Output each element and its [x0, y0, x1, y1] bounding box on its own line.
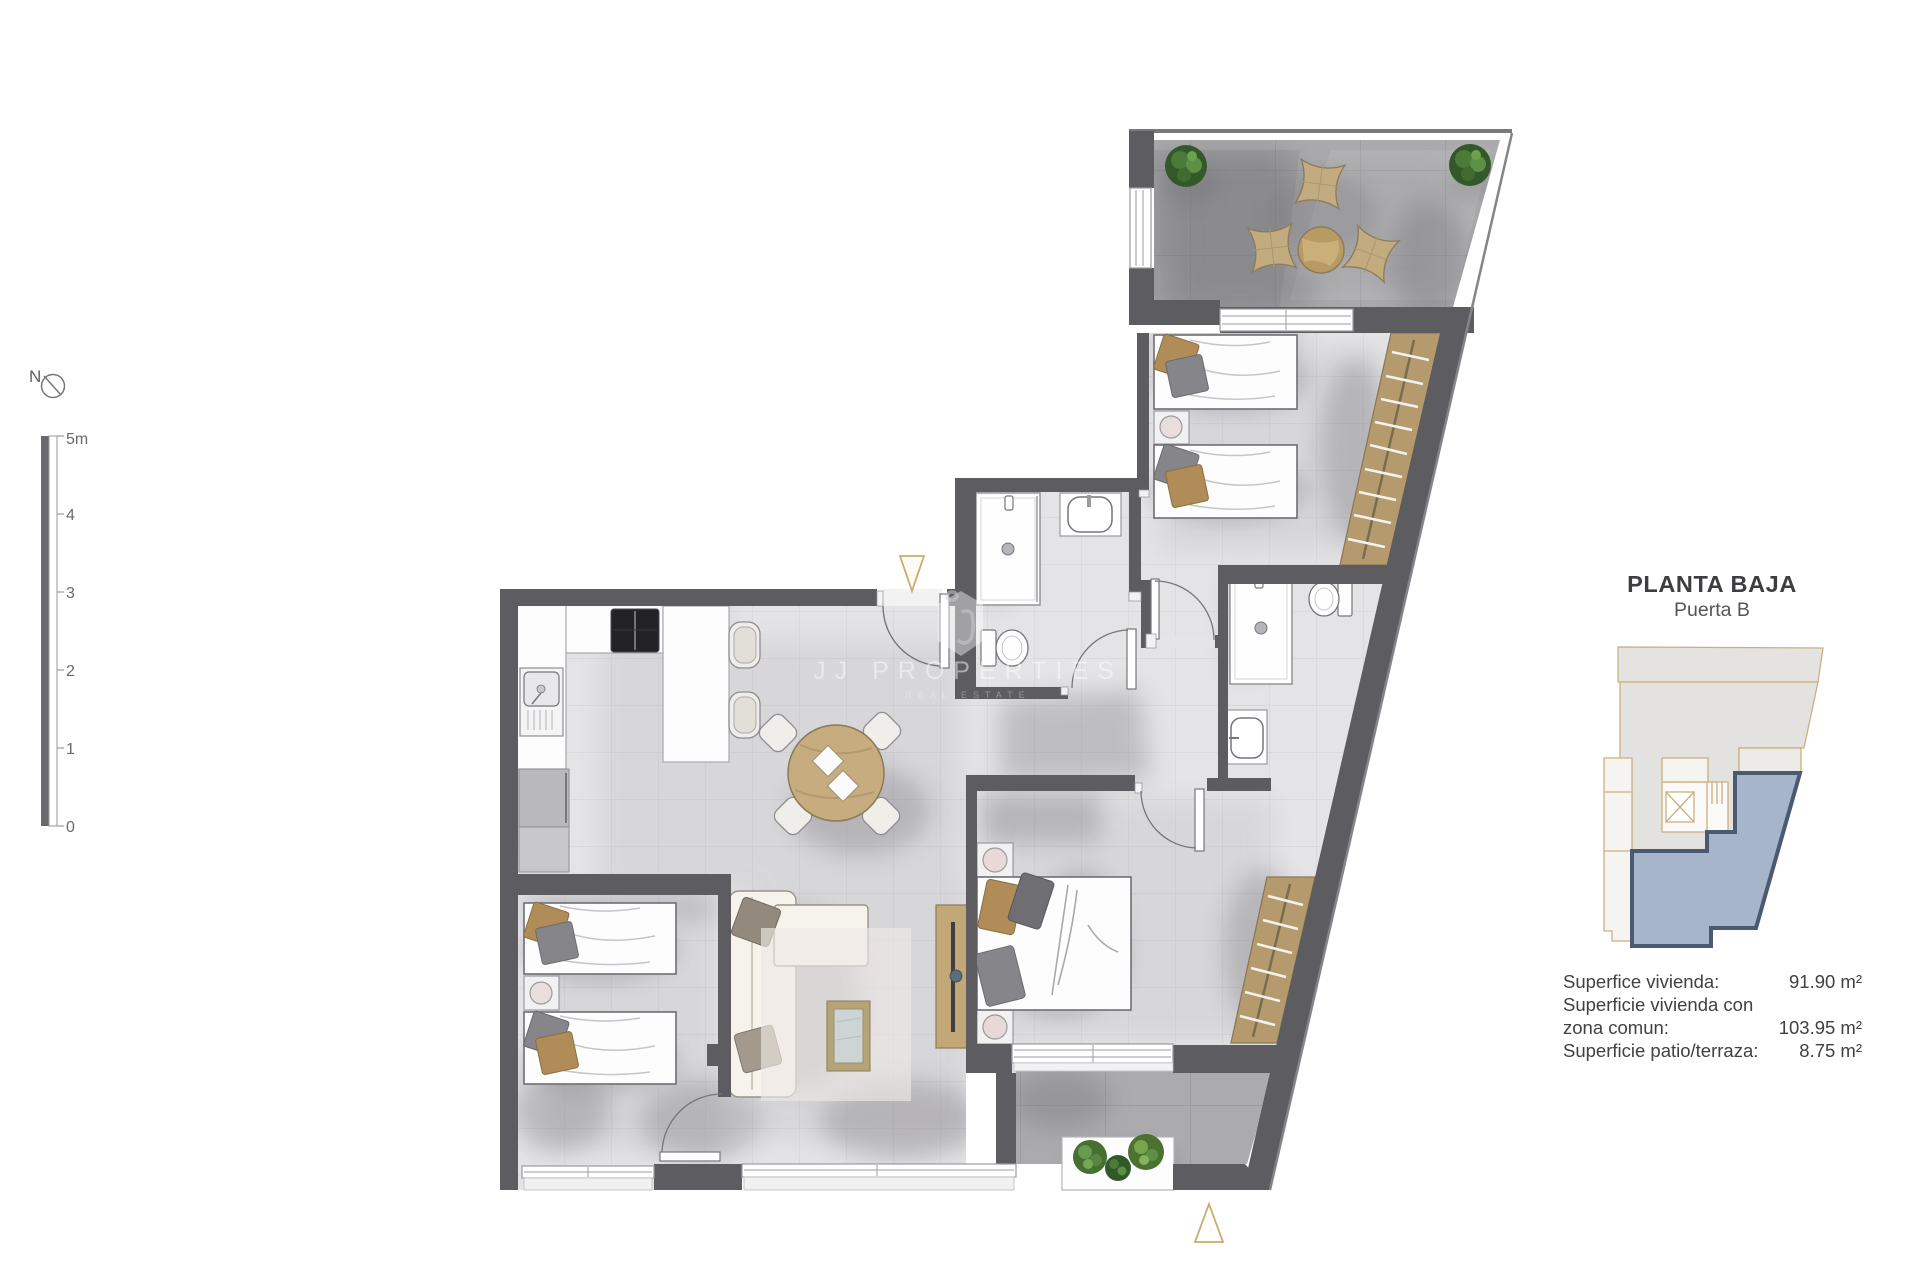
svg-text:2: 2: [66, 663, 75, 680]
svg-text:91.90 m²: 91.90 m²: [1789, 971, 1862, 992]
svg-text:Superficie vivienda con: Superficie vivienda con: [1563, 994, 1753, 1015]
svg-text:N: N: [29, 367, 41, 386]
svg-text:0: 0: [66, 819, 75, 836]
svg-text:zona comun:: zona comun:: [1563, 1017, 1669, 1038]
svg-text:1: 1: [66, 741, 75, 758]
svg-text:4: 4: [66, 507, 75, 524]
svg-text:5m: 5m: [66, 431, 88, 448]
svg-text:JJ PROPERTIES: JJ PROPERTIES: [813, 657, 1123, 685]
svg-text:Superficie patio/terraza:: Superficie patio/terraza:: [1563, 1040, 1758, 1061]
svg-text:8.75 m²: 8.75 m²: [1799, 1040, 1862, 1061]
svg-text:3: 3: [66, 585, 75, 602]
svg-text:Superfice vivienda:: Superfice vivienda:: [1563, 971, 1719, 992]
svg-text:PLANTA BAJA: PLANTA BAJA: [1627, 571, 1797, 597]
svg-text:REAL ESTATE: REAL ESTATE: [905, 690, 1030, 700]
svg-text:Puerta B: Puerta B: [1674, 599, 1750, 621]
svg-text:103.95 m²: 103.95 m²: [1779, 1017, 1862, 1038]
